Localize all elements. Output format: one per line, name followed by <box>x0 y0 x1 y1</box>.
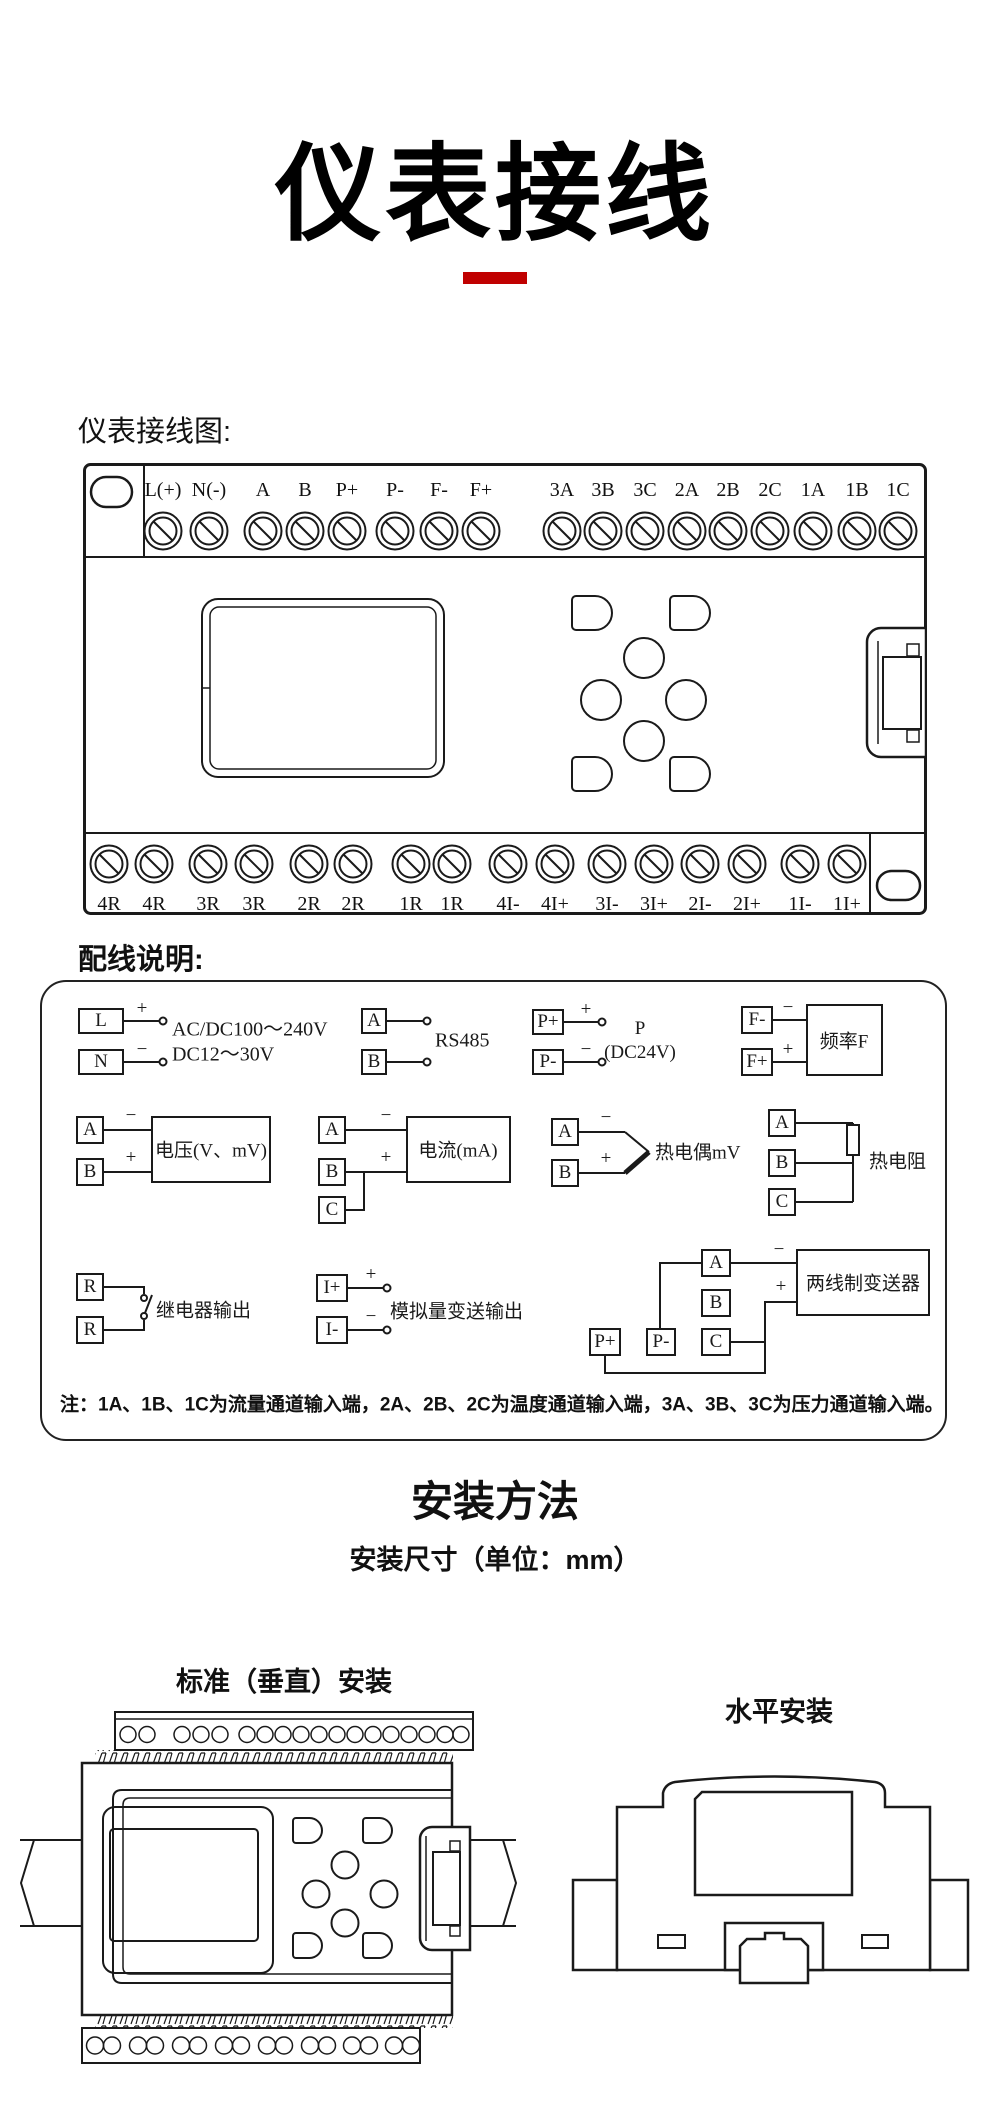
terminal-box-label: C <box>710 1331 723 1353</box>
terminal-label: 3R <box>196 893 220 915</box>
terminal-box-label: F+ <box>746 1051 767 1073</box>
terminal-label: F- <box>430 479 448 501</box>
terminal-label: L(+) <box>145 479 182 501</box>
wiring-desc: 模拟量变送输出 <box>390 1297 523 1324</box>
bottom-terminal-block <box>82 2028 420 2063</box>
terminal-label: B <box>298 479 311 501</box>
keypad-key[interactable] <box>581 680 621 720</box>
terminal-box-label: R <box>84 1276 97 1298</box>
polarity-sign: + <box>776 1276 787 1298</box>
wiring-desc: DC12～30V <box>172 1038 274 1067</box>
bottom-screw-terminals <box>91 846 866 883</box>
wiring-desc: P <box>635 1018 646 1040</box>
polarity-sign: + <box>783 1039 794 1061</box>
terminal-label: 2I- <box>688 893 711 915</box>
keypad-button[interactable] <box>572 757 612 791</box>
terminal-box-label: A <box>775 1112 789 1134</box>
device-box-label: 电流(mA) <box>418 1136 497 1163</box>
vent-strip <box>95 2015 453 2028</box>
keypad-key[interactable] <box>666 680 706 720</box>
keypad <box>572 596 710 791</box>
terminal-box-label: P+ <box>537 1011 558 1033</box>
terminal-label: 2A <box>675 479 700 501</box>
terminal-label: 2I+ <box>733 893 761 915</box>
red-divider <box>463 272 527 284</box>
terminal-label: 1I- <box>788 893 811 915</box>
terminal-box-label: A <box>325 1119 339 1141</box>
terminal-box-label: P- <box>540 1051 557 1073</box>
terminal-box-label: F- <box>749 1009 766 1031</box>
polarity-sign: + <box>366 1264 377 1286</box>
wiring-desc: 继电器输出 <box>156 1296 251 1323</box>
terminal-label: 2R <box>297 893 321 915</box>
terminal-label: 2B <box>716 479 739 501</box>
terminal-box-label: B <box>84 1161 97 1183</box>
terminal-label: 3C <box>633 479 656 501</box>
top-left-slot <box>91 477 132 507</box>
terminal-label: 3A <box>550 479 575 501</box>
polarity-sign: − <box>601 1107 612 1129</box>
wiring-desc: RS485 <box>435 1030 489 1053</box>
device-box-label: 电压(V、mV) <box>155 1136 267 1163</box>
polarity-sign: + <box>581 999 592 1021</box>
terminal-box-label: R <box>84 1319 97 1341</box>
terminal-label: 1C <box>886 479 909 501</box>
wiring-desc: 热电偶mV <box>655 1138 741 1165</box>
keypad-key[interactable] <box>624 638 664 678</box>
terminal-box-label: I+ <box>323 1277 340 1299</box>
top-terminal-block <box>115 1712 473 1750</box>
terminal-label: 1A <box>801 479 826 501</box>
keypad-key[interactable] <box>624 721 664 761</box>
resistor-symbol <box>847 1125 859 1155</box>
terminal-box-label: B <box>326 1161 339 1183</box>
terminal-label: 1R <box>399 893 423 915</box>
bottom-terminal-labels: 4R 4R 3R 3R 2R 2R 1R 1R 4I- 4I+ 3I- 3I+ … <box>97 893 861 915</box>
current-wiring <box>319 1117 510 1223</box>
terminal-label: 1I+ <box>833 893 861 915</box>
wiring-diagram-label: 仪表接线图: <box>78 408 231 450</box>
polarity-sign: + <box>381 1147 392 1169</box>
terminal-box-label: B <box>776 1152 789 1174</box>
keypad-button[interactable] <box>670 757 710 791</box>
terminal-box-label: B <box>368 1051 381 1073</box>
install-dimensions-subtitle: 安装尺寸（单位：mm） <box>0 1538 990 1577</box>
bottom-right-slot <box>877 871 920 900</box>
terminal-box-label: C <box>326 1199 339 1221</box>
install-method-title: 安装方法 <box>0 1468 990 1529</box>
terminal-label: 3B <box>591 479 614 501</box>
polarity-sign: + <box>126 1147 137 1169</box>
terminal-box-label: B <box>710 1292 723 1314</box>
vertical-install-label: 标准（垂直）安装 <box>176 1660 392 1699</box>
terminal-label: 4R <box>97 893 121 915</box>
horizontal-install-label: 水平安装 <box>725 1690 833 1729</box>
wiring-instructions-label: 配线说明: <box>78 936 204 978</box>
terminal-label: 4I- <box>496 893 519 915</box>
polarity-sign: + <box>601 1148 612 1170</box>
instrument-wiring-diagram: L(+) N(-) A B P+ P- F- F+ 3A 3B 3C 2A 2B… <box>83 463 927 915</box>
terminal-label: 3I+ <box>640 893 668 915</box>
wiring-desc: (DC24V) <box>604 1042 676 1064</box>
terminal-label: 1R <box>440 893 464 915</box>
vent-strip <box>95 1750 453 1763</box>
polarity-sign: − <box>581 1039 592 1061</box>
channel-note: 注：1A、1B、1C为流量通道输入端，2A、2B、2C为温度通道输入端，3A、3… <box>60 1390 944 1417</box>
keypad-button[interactable] <box>572 596 612 630</box>
terminal-label: F+ <box>470 479 492 501</box>
horizontal-install-diagram <box>565 1755 985 1990</box>
terminal-label: P+ <box>336 479 358 501</box>
terminal-label: 1B <box>845 479 868 501</box>
side-connector <box>420 1827 470 1950</box>
top-terminal-labels: L(+) N(-) A B P+ P- F- F+ 3A 3B 3C 2A 2B… <box>145 479 910 501</box>
vertical-install-diagram <box>20 1700 520 2075</box>
polarity-sign: − <box>126 1105 137 1127</box>
polarity-sign: − <box>783 997 794 1019</box>
lcd-display <box>202 599 444 777</box>
side-connector <box>867 628 926 757</box>
terminal-label: 4I+ <box>541 893 569 915</box>
terminal-label: A <box>256 479 271 501</box>
terminal-box-label: P+ <box>594 1331 615 1353</box>
rail-end <box>930 1880 968 1970</box>
terminal-box-label: N <box>94 1051 108 1073</box>
terminal-label: 3R <box>242 893 266 915</box>
terminal-label: N(-) <box>192 479 226 501</box>
rail-end <box>573 1880 617 1970</box>
terminal-box-label: B <box>559 1162 572 1184</box>
terminal-box-label: P- <box>653 1331 670 1353</box>
terminal-label: P- <box>386 479 404 501</box>
terminal-box-label: C <box>776 1191 789 1213</box>
rail-clip <box>740 1933 808 1983</box>
device-box-label: 两线制变送器 <box>806 1269 920 1296</box>
terminal-box-label: A <box>367 1010 381 1032</box>
terminal-label: 3I- <box>595 893 618 915</box>
terminal-label: 4R <box>142 893 166 915</box>
keypad-button[interactable] <box>670 596 710 630</box>
power-wiring <box>79 1009 167 1074</box>
terminal-box-label: A <box>709 1252 723 1274</box>
manual-page: 仪表接线 仪表接线图: L(+) N(-) A B P+ P- F- F+ <box>0 0 990 2108</box>
top-screw-terminals <box>145 513 917 550</box>
device-box-label: 频率F <box>820 1027 869 1054</box>
red-divider-bar <box>463 272 527 284</box>
polarity-sign: − <box>381 1105 392 1127</box>
terminal-box-label: L <box>95 1010 107 1032</box>
polarity-sign: + <box>137 998 148 1020</box>
polarity-sign: − <box>366 1306 377 1328</box>
wiring-desc: 热电阻 <box>869 1147 926 1174</box>
terminal-label: 2C <box>758 479 781 501</box>
page-title: 仪表接线 <box>0 108 990 262</box>
terminal-box-label: A <box>83 1119 97 1141</box>
polarity-sign: − <box>774 1239 785 1261</box>
terminal-box-label: A <box>558 1121 572 1143</box>
terminal-box-label: I- <box>326 1319 339 1341</box>
terminal-label: 2R <box>341 893 365 915</box>
wiring-instructions-panel: L N + − AC/DC100～240V DC12～30V A B RS485… <box>40 980 947 1441</box>
polarity-sign: − <box>137 1039 148 1061</box>
